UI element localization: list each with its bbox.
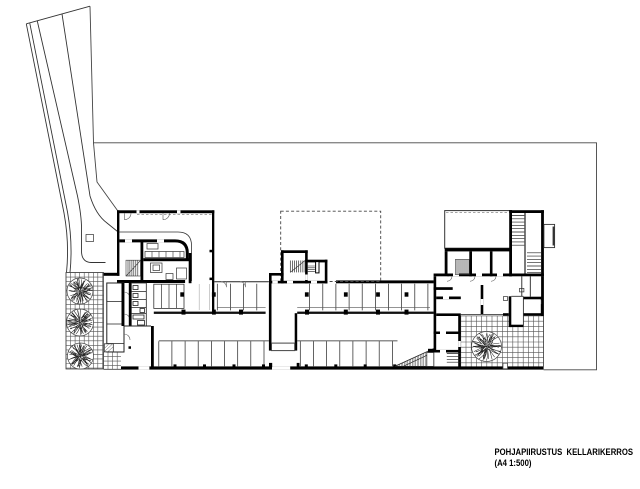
svg-text:(A4 1:500): (A4 1:500) — [495, 458, 532, 468]
svg-text:POHJAPIIRUSTUS KELLARIKERROS: POHJAPIIRUSTUS KELLARIKERROS — [495, 447, 634, 457]
